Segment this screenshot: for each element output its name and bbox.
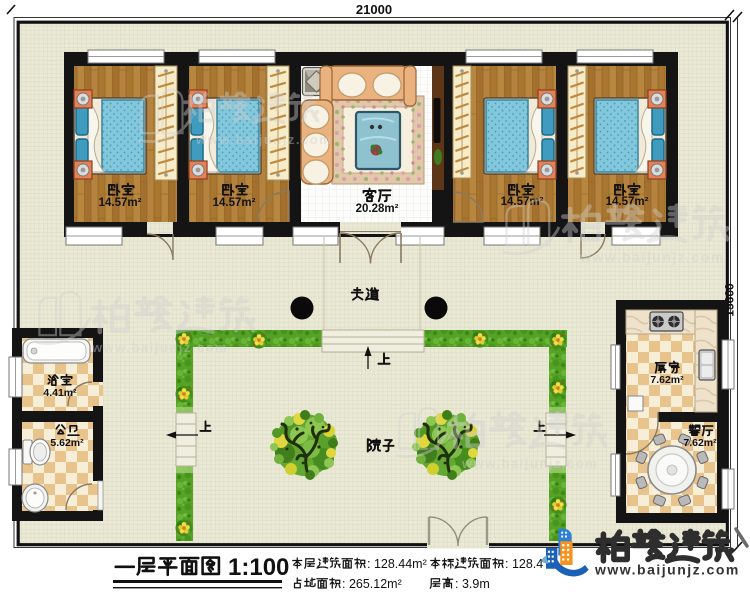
svg-text:www.baijunjz.com: www.baijunjz.com (195, 132, 332, 147)
svg-text:: 128.44m²: : 128.44m² (367, 557, 427, 571)
svg-text:: 3.9m: : 3.9m (455, 577, 490, 591)
svg-text:7.62m²: 7.62m² (683, 437, 717, 449)
svg-text:: 265.12m²: : 265.12m² (342, 577, 402, 591)
svg-text:14.57m²: 14.57m² (213, 197, 256, 209)
svg-text:21000: 21000 (356, 2, 392, 17)
svg-text:4.41m²: 4.41m² (43, 387, 77, 399)
svg-text:www.baijunjz.com: www.baijunjz.com (594, 562, 740, 578)
svg-text:www.baijunjz.com: www.baijunjz.com (91, 340, 228, 355)
svg-text:www.baijunjz.com: www.baijunjz.com (461, 456, 598, 471)
svg-text:20.28m²: 20.28m² (356, 203, 399, 215)
svg-text:7.62m²: 7.62m² (650, 374, 684, 386)
svg-text:1:100: 1:100 (228, 554, 289, 581)
svg-text:www.baijunjz.com: www.baijunjz.com (579, 249, 725, 265)
svg-text:5.62m²: 5.62m² (50, 437, 84, 449)
svg-text:14.57m²: 14.57m² (99, 197, 142, 209)
svg-text:: 128.4: : 128.4 (505, 557, 543, 571)
